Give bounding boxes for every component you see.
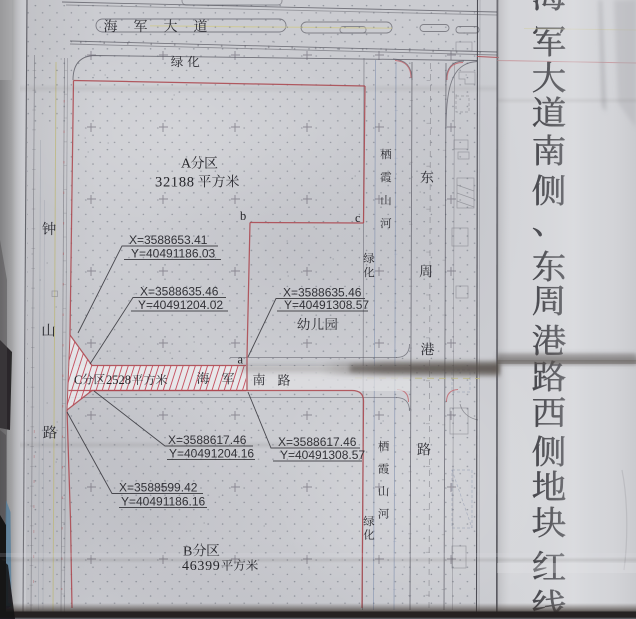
- svg-text:Y=40491204.02: Y=40491204.02: [138, 298, 223, 312]
- svg-text:Y=40491186.16: Y=40491186.16: [121, 495, 206, 509]
- svg-text:A: A: [181, 157, 192, 172]
- svg-text:X=3588635.46: X=3588635.46: [140, 285, 219, 299]
- svg-text:Y=40491308.57: Y=40491308.57: [280, 448, 365, 462]
- svg-text:32188: 32188: [155, 175, 195, 191]
- svg-text:X=3588653.41: X=3588653.41: [129, 233, 208, 247]
- svg-text:Y=40491186.03: Y=40491186.03: [131, 247, 216, 261]
- svg-text:c: c: [355, 211, 361, 225]
- svg-text:b: b: [240, 209, 246, 223]
- svg-text:Y=40491308.57: Y=40491308.57: [284, 298, 369, 312]
- svg-text:C: C: [74, 373, 82, 387]
- svg-text:2528: 2528: [106, 373, 131, 387]
- svg-text:X=3588599.42: X=3588599.42: [119, 481, 198, 495]
